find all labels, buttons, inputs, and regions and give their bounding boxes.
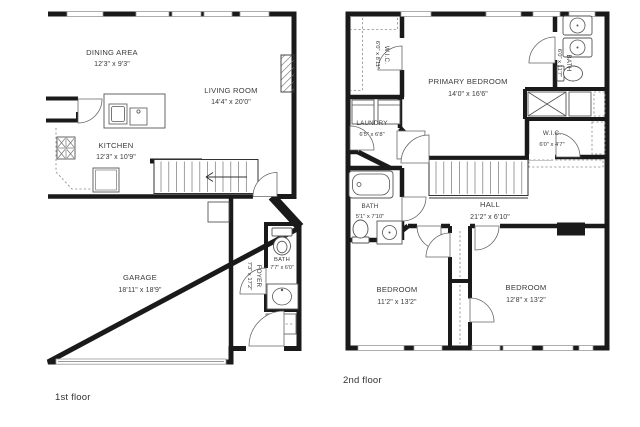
window xyxy=(486,12,521,17)
bath-top-name: BATH xyxy=(565,54,572,71)
toilet-icon xyxy=(272,228,292,255)
bath-top-door-arc xyxy=(529,37,555,63)
bedroom-right-dims: 12'8" x 13'2" xyxy=(506,297,546,304)
window xyxy=(503,346,532,351)
garage-dims: 18'11" x 18'9" xyxy=(118,287,162,294)
window xyxy=(136,12,169,17)
window xyxy=(414,346,442,351)
window xyxy=(204,12,232,17)
dining-area-name: DINING AREA xyxy=(86,48,138,57)
second-floor-label: 2nd floor xyxy=(343,375,382,386)
laundry-name: LAUNDRY xyxy=(356,120,387,127)
kitchen-dims: 12'3" x 10'9" xyxy=(96,154,136,161)
bedroom-right-door-arc xyxy=(475,226,499,250)
bath-hall-name: BATH xyxy=(361,203,378,210)
primary-bedroom-dims: 14'0" x 16'6" xyxy=(448,91,488,98)
window xyxy=(543,346,573,351)
laundry-door-arc xyxy=(350,126,374,150)
hall-dims: 21'2" x 6'10" xyxy=(470,214,510,221)
wall-pantry xyxy=(46,99,78,122)
sink-vanity-icon xyxy=(267,284,298,309)
hall-name: HALL xyxy=(480,200,500,209)
bath-shelf xyxy=(594,92,605,116)
sink-icon xyxy=(377,221,402,244)
kitchen-island xyxy=(104,94,165,128)
closet-lower-door-arc xyxy=(470,298,494,322)
wic-left-dims: 6'0" x 8'11" xyxy=(374,41,380,69)
laundry-dims: 6'5" x 6'8" xyxy=(359,132,384,138)
floor-plan-svg: DINING AREA 12'3" x 9'3" LIVING ROOM 14'… xyxy=(0,0,640,427)
window xyxy=(401,12,431,17)
bath1-name: BATH xyxy=(274,257,290,263)
window xyxy=(67,12,103,17)
stairs-first-floor xyxy=(154,160,258,194)
dining-area-dims: 12'3" x 9'3" xyxy=(94,61,130,68)
wall-chunk xyxy=(557,223,585,236)
floor-plan-image: DINING AREA 12'3" x 9'3" LIVING ROOM 14'… xyxy=(0,0,640,427)
window xyxy=(358,346,404,351)
primary-bedroom-name: PRIMARY BEDROOM xyxy=(428,77,507,86)
bath1-dims: 7'7" x 6'0" xyxy=(270,265,294,271)
garage-name: GARAGE xyxy=(123,273,157,282)
foyer-name: FOYER xyxy=(255,265,262,288)
toilet-icon xyxy=(352,220,369,243)
bedroom-left-dims: 11'2" x 13'2" xyxy=(377,299,417,306)
bedroom-left-name: BEDROOM xyxy=(377,285,418,294)
bath-hall-door-arc xyxy=(402,197,426,221)
wic-right-door-opening xyxy=(529,154,555,160)
first-floor-plan: DINING AREA 12'3" x 9'3" LIVING ROOM 14'… xyxy=(46,12,300,403)
first-floor-label: 1st floor xyxy=(55,392,91,403)
bathtub-icon xyxy=(349,171,393,198)
wic-left-name: W.I.C. xyxy=(383,46,390,64)
kitchen-name: KITCHEN xyxy=(98,141,133,150)
wic-right-name: W.I.C. xyxy=(543,130,561,137)
window xyxy=(579,346,593,351)
stairs-second-floor xyxy=(429,160,528,199)
living-room-dims: 14'4" x 20'0" xyxy=(211,99,251,106)
furnace-icon xyxy=(208,202,229,222)
window xyxy=(472,346,500,351)
bedroom-right-name: BEDROOM xyxy=(506,283,547,292)
bath-top-dims: 6'0" x 11'7" xyxy=(556,49,562,77)
window xyxy=(172,12,201,17)
range-icon xyxy=(57,137,75,159)
refrigerator-icon xyxy=(93,168,119,192)
fireplace-icon xyxy=(281,55,294,92)
front-door-arc xyxy=(249,311,284,346)
living-room-name: LIVING ROOM xyxy=(204,86,257,95)
second-floor-plan: W.I.C. 6'0" x 8'11" PRIMARY BEDROOM 14'0… xyxy=(343,12,607,386)
window xyxy=(240,12,269,17)
window xyxy=(533,12,560,17)
foyer-dims: 7'3" x 17'2" xyxy=(246,262,252,291)
linen-closet xyxy=(569,92,591,116)
pantry-door-arc xyxy=(78,99,102,123)
double-sink-icon xyxy=(563,16,592,57)
shower-icon xyxy=(528,92,566,116)
bath-hall-dims: 5'1" x 7'10" xyxy=(356,214,385,220)
wic-right-dims: 6'0" x 4'7" xyxy=(539,142,564,148)
